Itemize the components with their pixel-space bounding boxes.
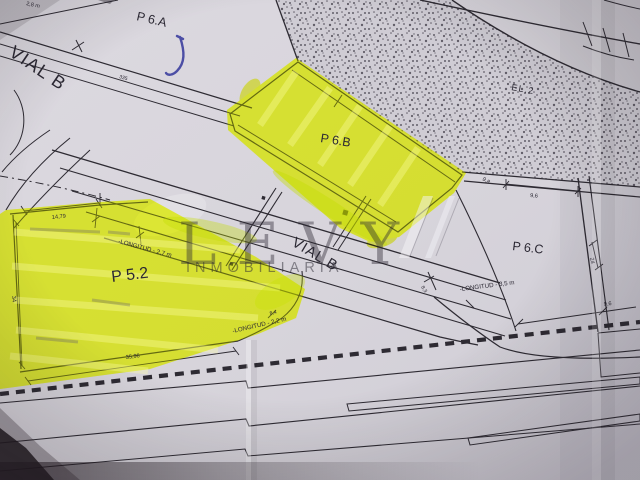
site-plan-photo: P 6.A P 6.B P 6.C P 5.2 EL.2 VIAL B VIAL…: [0, 0, 640, 480]
photo-artifacts: [0, 0, 640, 480]
vignette: [0, 0, 640, 480]
site-plan-canvas: P 6.A P 6.B P 6.C P 5.2 EL.2 VIAL B VIAL…: [0, 0, 640, 480]
